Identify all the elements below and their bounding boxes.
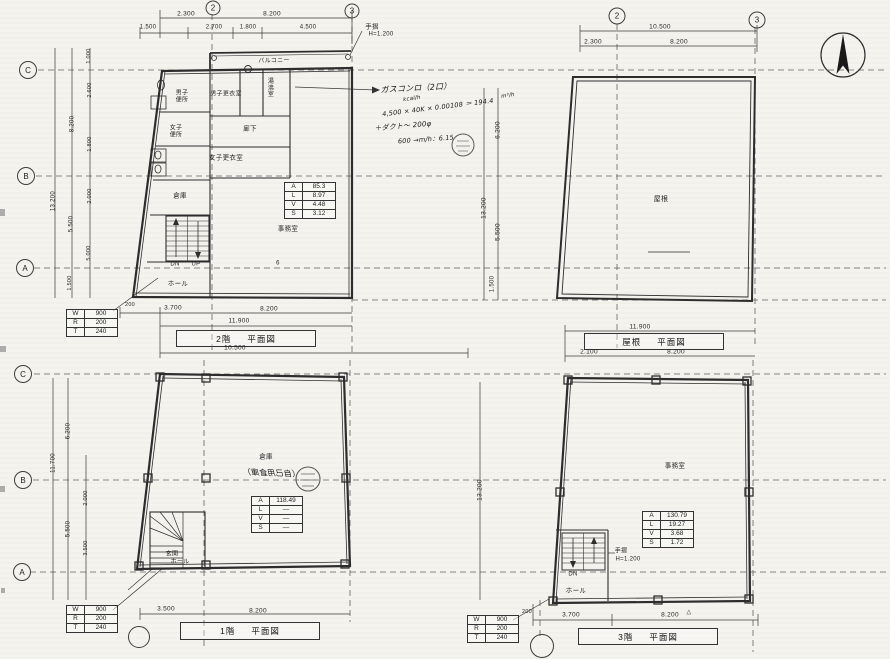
f3-triangle-mark: △: [687, 610, 692, 617]
grid-a-lower: A: [13, 563, 31, 581]
f2-stairs-up: UP: [192, 262, 201, 269]
f2-area-val-a: 85.3: [303, 183, 336, 192]
floor1-title-type: 平面図: [251, 625, 280, 637]
scan-artifacts: [0, 209, 6, 593]
f2-dim-2300: 2.300: [177, 10, 195, 17]
mid-dim-6200: 6.200: [494, 121, 501, 139]
left-dim-13200: 13.200: [51, 191, 58, 211]
f2-stairs-dn: DN: [170, 262, 179, 269]
floor2-title-floor: 2階: [216, 333, 231, 345]
roof-title-type: 平面図: [657, 336, 686, 348]
floor2-area-table: A85.3 L8.97 V4.48 S3.12: [284, 182, 336, 219]
f2-dim-4500: 4.500: [300, 25, 317, 32]
f2-stair-key-r: R: [67, 319, 85, 328]
f2-stair-val-w: 900: [85, 310, 118, 319]
f1-area-key-s: S: [252, 524, 270, 533]
grid-3-roof: 3: [749, 12, 766, 29]
floor3-plan-linework: [549, 376, 753, 605]
f2-dim-3700: 3.700: [164, 304, 182, 311]
roof-dim-8200-top: 8.200: [670, 38, 688, 45]
left-dim-5500: 5.500: [69, 216, 76, 233]
grid-a-upper: A: [16, 259, 34, 277]
floor2-title-type: 平面図: [247, 333, 276, 345]
f2-balcony-label: バルコニー: [258, 59, 289, 66]
floor3-title-box: 3階 平面図: [578, 628, 718, 645]
f1-left-dim-3500: 3.500: [83, 540, 89, 555]
roof-label: 屋根: [654, 196, 669, 204]
f2-door-number: 6: [276, 261, 280, 268]
f2-stair-val-t: 240: [85, 328, 118, 337]
roof-dim-8200-bot: 8.200: [667, 348, 685, 355]
f2-area-val-s: 3.12: [303, 210, 336, 219]
f1-entrance: 玄関: [166, 552, 179, 559]
f2-area-key-v: V: [285, 201, 303, 210]
f3-area-key-s: S: [643, 539, 661, 548]
floor1-stair-table: W900 R200 T240: [66, 605, 118, 633]
f2-dim-8200-top: 8.200: [263, 10, 281, 17]
f1-left-dim-2000: 2.000: [83, 490, 89, 505]
f1-room-storage: 倉庫: [259, 453, 273, 460]
f3-stair-val-w: 900: [486, 616, 519, 625]
f2-room-womens-toilet: 女子便所: [169, 125, 184, 138]
f2-dim-11900: 11.900: [228, 317, 249, 324]
f1-stair-key-r: R: [67, 615, 85, 624]
f3-hall-label: ホール: [566, 587, 586, 594]
roof-plan-linework: [557, 77, 755, 301]
floor3-title-floor: 3階: [618, 631, 633, 643]
grid-3-upper-left: 3: [345, 4, 360, 19]
f1-stair-val-r: 200: [85, 615, 118, 624]
f2-note-handrail: 手摺: [365, 23, 379, 30]
f2-room-boiler: 湯沸室: [267, 79, 276, 99]
f3-stair-val-r: 200: [486, 625, 519, 634]
f3-room-office: 事務室: [665, 462, 685, 469]
grid-c-upper: C: [19, 61, 37, 79]
floor3-title-type: 平面図: [649, 631, 678, 643]
mid-dim-1500: 1.500: [490, 276, 497, 293]
f1-dim-8200: 8.200: [249, 607, 267, 614]
f3-stair-val-t: 240: [486, 634, 519, 643]
f2-area-val-v: 4.48: [303, 201, 336, 210]
f2-area-key-a: A: [285, 183, 303, 192]
grid-b-upper: B: [17, 167, 35, 185]
f1-stair-val-t: 240: [85, 624, 118, 633]
left-dim-8200: 8.200: [70, 116, 77, 133]
f3-area-val-l: 19.27: [661, 521, 694, 530]
f1-stair-val-w: 900: [85, 606, 118, 615]
f1-left-dim-11700: 11.700: [51, 453, 58, 473]
grid-lines: [30, 14, 886, 652]
floor3-stair-table: W900 R200 T240: [467, 615, 519, 643]
f2-dim-1800: 1.800: [240, 25, 257, 32]
f3-note-handrail: 手摺: [615, 549, 628, 556]
left-dim-2600: 2.600: [87, 82, 93, 97]
floor1-area-table: A118.49 L— V— S—: [251, 496, 303, 533]
f2-stair-key-t: T: [67, 328, 85, 337]
floor3-columns: [549, 376, 753, 605]
f2-area-val-l: 8.97: [303, 192, 336, 201]
f3-dim-3700: 3.700: [562, 611, 580, 618]
f2-room-mens-locker: 男子更衣室: [210, 92, 242, 99]
f1-stair-key-t: T: [67, 624, 85, 633]
floor1-title-box: 1階 平面図: [180, 622, 320, 640]
f3-stair-key-r: R: [468, 625, 486, 634]
f1-stair-key-w: W: [67, 606, 85, 615]
f3-area-val-v: 3.68: [661, 530, 694, 539]
f1-area-val-a: 118.49: [270, 497, 303, 506]
left-dim-2000: 2.000: [87, 188, 93, 203]
left-dim-5000: 5.000: [86, 245, 92, 260]
f1-left-dim-6200: 6.200: [66, 423, 73, 440]
f2-note-handrail-height: H=1.200: [369, 32, 394, 39]
roof-dim-10500: 10.500: [649, 23, 671, 30]
f1-area-val-l: —: [270, 506, 303, 515]
grid-mark-f3-bottom: [530, 634, 554, 658]
f1-hall-label: ホール: [171, 560, 190, 567]
grid-c-lower: C: [14, 365, 32, 383]
f1-area-val-v: —: [270, 515, 303, 524]
left-dim-1000: 1.000: [86, 48, 92, 63]
f1-area-val-s: —: [270, 524, 303, 533]
mid-dim-13200: 13.200: [480, 197, 487, 219]
floor3-area-table: A130.79 L19.27 V3.68 S1.72: [642, 511, 694, 548]
f2-dim-200: 200: [125, 302, 135, 308]
f2-room-office: 事務室: [278, 225, 298, 232]
grid-mark-f1-bottom: [128, 626, 150, 648]
f2-stair-key-w: W: [67, 310, 85, 319]
f2-room-corridor: 廊下: [243, 125, 257, 132]
f3-area-key-a: A: [643, 512, 661, 521]
f2-dim-8200-bot: 8.200: [260, 305, 278, 312]
f2-stair-val-r: 200: [85, 319, 118, 328]
floor2-stairs: [166, 216, 209, 261]
f2-area-key-l: L: [285, 192, 303, 201]
approval-stamp-note: [452, 134, 474, 156]
grid-2-upper-left: 2: [206, 1, 221, 16]
f2-dim-1500: 1.500: [140, 25, 157, 32]
f2-hall-label: ホール: [168, 280, 188, 287]
f3-note-handrail-height: H=1.200: [616, 557, 641, 564]
f3-area-key-v: V: [643, 530, 661, 539]
f3-stair-key-t: T: [468, 634, 486, 643]
mid-dim-13200-lower: 13.200: [476, 479, 483, 501]
f2-area-key-s: S: [285, 210, 303, 219]
f2-room-storage: 倉庫: [173, 192, 187, 199]
f1-area-key-a: A: [252, 497, 270, 506]
floor1-title-floor: 1階: [220, 625, 235, 637]
f3-dim-8200: 8.200: [661, 611, 679, 618]
plan-linework: [0, 0, 890, 659]
roof-dim-11900: 11.900: [629, 323, 650, 330]
f3-stairs-dn: DN: [568, 572, 577, 579]
roof-title-box: 屋根 平面図: [584, 333, 724, 350]
f2-dim-10500: 10.500: [224, 344, 246, 351]
f3-area-val-a: 130.79: [661, 512, 694, 521]
f1-dim-3500: 3.500: [157, 605, 175, 612]
f3-area-val-s: 1.72: [661, 539, 694, 548]
f1-area-key-v: V: [252, 515, 270, 524]
roof-dim-2300: 2.300: [584, 38, 602, 45]
grid-2-roof: 2: [609, 8, 626, 25]
f2-room-mens-toilet: 男子便所: [175, 90, 190, 103]
roof-title-floor: 屋根: [622, 336, 641, 348]
floor2-stair-table: W900 R200 T240: [66, 309, 118, 337]
f1-left-dim-5500: 5.500: [66, 521, 73, 538]
left-dim-1800: 1.800: [87, 136, 93, 151]
f2-dim-2700: 2.700: [206, 25, 223, 32]
grid-b-lower: B: [14, 471, 32, 489]
f3-dim-200: 200: [522, 609, 532, 615]
drawing-sheet: 2階 平面図 屋根 平面図 1階 平面図 3階 平面図 A85.3 L8.97 …: [0, 0, 890, 659]
f3-stair-key-w: W: [468, 616, 486, 625]
mid-dim-5500: 5.500: [494, 223, 501, 241]
f1-area-key-l: L: [252, 506, 270, 515]
left-dim-1500: 1.500: [67, 275, 73, 290]
roof-dim-2100: 2.100: [580, 348, 598, 355]
f3-area-key-l: L: [643, 521, 661, 530]
leader-arrowhead: [372, 87, 380, 94]
f2-room-womens-locker: 女子更衣室: [209, 154, 243, 161]
